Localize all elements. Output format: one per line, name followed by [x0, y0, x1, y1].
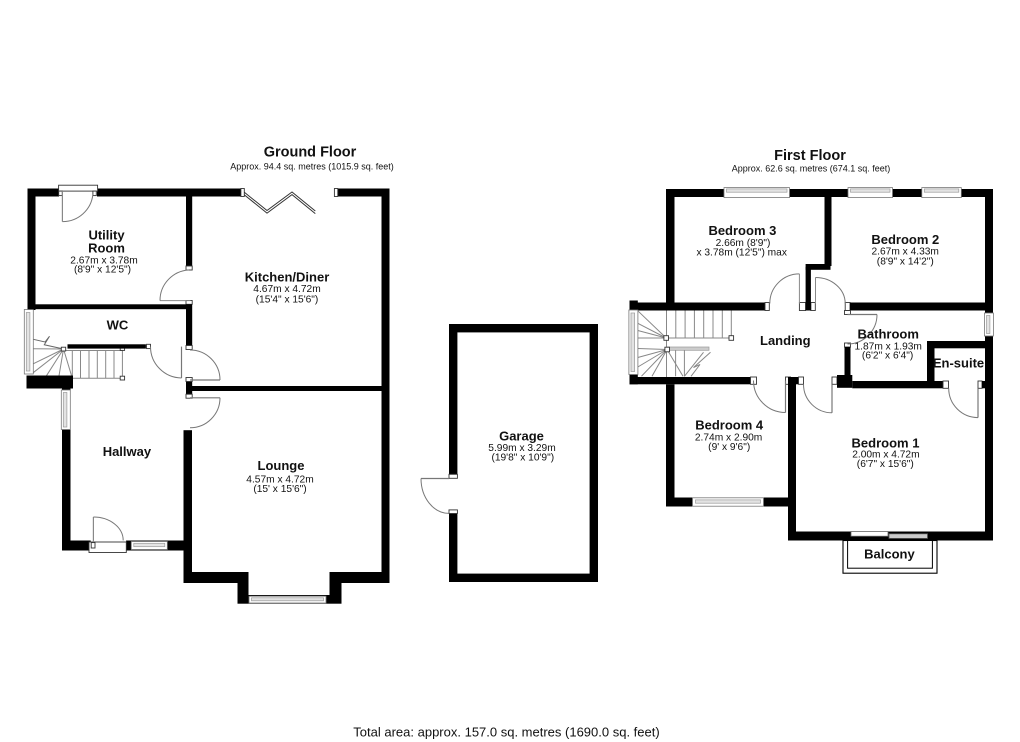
svg-text:Bedroom 3: Bedroom 3: [708, 223, 776, 238]
svg-text:Hallway: Hallway: [103, 444, 152, 459]
svg-text:(19'8" x 10'9"): (19'8" x 10'9"): [491, 453, 554, 464]
svg-text:Garage: Garage: [499, 429, 544, 444]
svg-text:(9' x 9'6"): (9' x 9'6"): [708, 442, 750, 453]
svg-text:(6'2" x 6'4"): (6'2" x 6'4"): [862, 351, 913, 362]
svg-text:Bedroom 2: Bedroom 2: [871, 232, 939, 247]
svg-text:x 3.78m (12'5") max: x 3.78m (12'5") max: [696, 248, 787, 259]
svg-text:Approx. 94.4 sq. metres (1015.: Approx. 94.4 sq. metres (1015.9 sq. feet…: [230, 162, 394, 172]
svg-text:(8'9" x 14'2"): (8'9" x 14'2"): [877, 256, 934, 267]
svg-text:Landing: Landing: [760, 333, 811, 348]
svg-text:Approx. 62.6 sq. metres (674.1: Approx. 62.6 sq. metres (674.1 sq. feet): [732, 164, 891, 174]
svg-text:First Floor: First Floor: [774, 148, 846, 164]
svg-text:Bathroom: Bathroom: [858, 327, 919, 342]
svg-text:En-suite: En-suite: [933, 355, 984, 370]
svg-text:Bedroom 1: Bedroom 1: [852, 436, 920, 451]
svg-text:(6'7" x 15'6"): (6'7" x 15'6"): [857, 459, 914, 470]
svg-text:Kitchen/Diner: Kitchen/Diner: [245, 270, 330, 285]
svg-text:Lounge: Lounge: [258, 458, 305, 473]
svg-text:Room: Room: [88, 241, 125, 256]
svg-text:Ground Floor: Ground Floor: [264, 145, 357, 161]
svg-text:Total area: approx. 157.0 sq.: Total area: approx. 157.0 sq. metres (16…: [353, 724, 659, 739]
svg-text:Bedroom 4: Bedroom 4: [695, 417, 764, 432]
svg-text:(8'9" x 12'5"): (8'9" x 12'5"): [74, 265, 131, 276]
svg-text:(15'4" x 15'6"): (15'4" x 15'6"): [256, 295, 319, 306]
svg-text:4.67m x 4.72m: 4.67m x 4.72m: [253, 284, 320, 295]
svg-text:Balcony: Balcony: [864, 547, 915, 562]
svg-text:(15' x 15'6"): (15' x 15'6"): [253, 484, 306, 495]
svg-text:WC: WC: [107, 318, 129, 333]
